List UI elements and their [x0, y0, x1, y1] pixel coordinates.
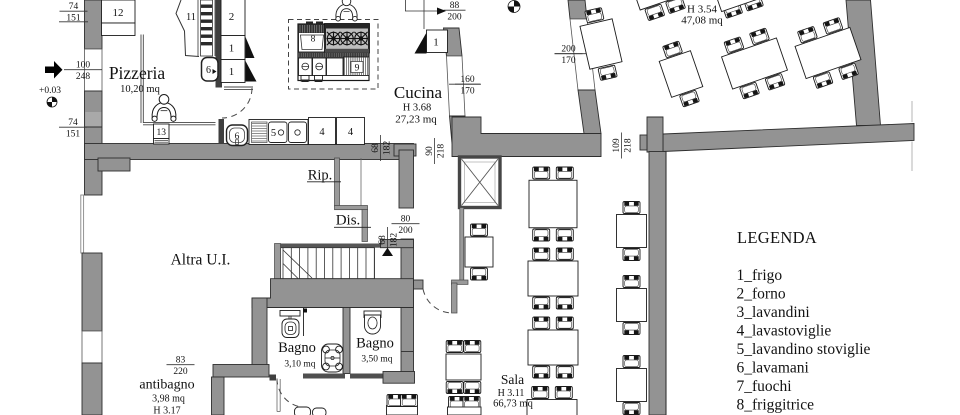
- svg-text:218: 218: [624, 138, 634, 153]
- svg-text:10,20 mq: 10,20 mq: [120, 84, 160, 95]
- svg-text:151: 151: [66, 130, 81, 140]
- svg-text:13: 13: [156, 128, 166, 138]
- svg-text:200: 200: [447, 13, 462, 23]
- svg-text:68: 68: [371, 143, 381, 153]
- svg-text:68: 68: [378, 235, 388, 245]
- svg-text:47,08 mq: 47,08 mq: [681, 15, 723, 27]
- svg-text:7_fuochi: 7_fuochi: [737, 378, 793, 395]
- svg-text:83: 83: [176, 356, 186, 366]
- svg-text:5_lavandino stoviglie: 5_lavandino stoviglie: [737, 341, 871, 358]
- svg-text:74: 74: [68, 118, 78, 128]
- svg-text:Sala: Sala: [501, 372, 524, 387]
- svg-text:4_lavastoviglie: 4_lavastoviglie: [737, 323, 832, 340]
- svg-text:218: 218: [437, 144, 447, 159]
- svg-text:11: 11: [186, 12, 196, 23]
- svg-text:1_frigo: 1_frigo: [737, 267, 783, 284]
- svg-text:74: 74: [69, 2, 79, 12]
- svg-text:109: 109: [612, 138, 622, 153]
- svg-text:6_lavamani: 6_lavamani: [737, 360, 810, 377]
- svg-text:Bagno: Bagno: [278, 340, 316, 356]
- svg-text:12: 12: [113, 7, 124, 19]
- svg-text:88: 88: [450, 1, 460, 11]
- svg-text:1: 1: [229, 66, 235, 78]
- svg-text:100: 100: [76, 61, 91, 71]
- svg-text:200: 200: [398, 226, 413, 236]
- svg-text:8: 8: [311, 35, 316, 45]
- svg-text:Cucina: Cucina: [394, 83, 443, 102]
- svg-text:9: 9: [355, 64, 360, 74]
- svg-text:170: 170: [460, 87, 475, 97]
- svg-text:antibagno: antibagno: [139, 378, 194, 393]
- svg-text:H 3.68: H 3.68: [403, 103, 432, 114]
- svg-text:LEGENDA: LEGENDA: [737, 228, 817, 247]
- svg-text:1: 1: [433, 37, 439, 49]
- svg-text:Rip.: Rip.: [308, 168, 333, 184]
- svg-text:Dis.: Dis.: [336, 213, 361, 229]
- svg-text:+0.03: +0.03: [39, 86, 61, 96]
- svg-text:27,23 mq: 27,23 mq: [395, 114, 437, 126]
- svg-text:5: 5: [271, 128, 276, 139]
- svg-text:66,73 mq: 66,73 mq: [493, 399, 533, 410]
- svg-text:Bagno: Bagno: [356, 336, 394, 352]
- svg-text:200: 200: [561, 45, 576, 55]
- svg-text:Pizzeria: Pizzeria: [109, 63, 166, 83]
- svg-text:4: 4: [319, 127, 325, 138]
- svg-text:220: 220: [173, 367, 188, 377]
- svg-text:80: 80: [401, 215, 411, 225]
- svg-text:1: 1: [229, 43, 235, 55]
- svg-text:8_friggitrice: 8_friggitrice: [737, 397, 815, 414]
- svg-text:2_forno: 2_forno: [737, 286, 786, 303]
- svg-text:170: 170: [561, 56, 576, 66]
- svg-text:3,98 mq: 3,98 mq: [152, 394, 185, 405]
- svg-text:90: 90: [425, 146, 435, 156]
- svg-text:H 3.11: H 3.11: [498, 388, 525, 399]
- svg-text:182: 182: [383, 141, 393, 156]
- svg-text:160: 160: [460, 75, 475, 85]
- svg-text:H 3.17: H 3.17: [153, 406, 180, 415]
- svg-text:248: 248: [76, 72, 91, 82]
- svg-text:4: 4: [348, 127, 354, 138]
- svg-text:3_lavandini: 3_lavandini: [737, 304, 811, 321]
- svg-text:Altra U.I.: Altra U.I.: [171, 252, 231, 269]
- svg-text:3,50 mq: 3,50 mq: [361, 355, 392, 365]
- svg-text:3,10 mq: 3,10 mq: [284, 360, 315, 370]
- svg-text:2: 2: [229, 11, 235, 23]
- svg-text:6: 6: [206, 65, 211, 76]
